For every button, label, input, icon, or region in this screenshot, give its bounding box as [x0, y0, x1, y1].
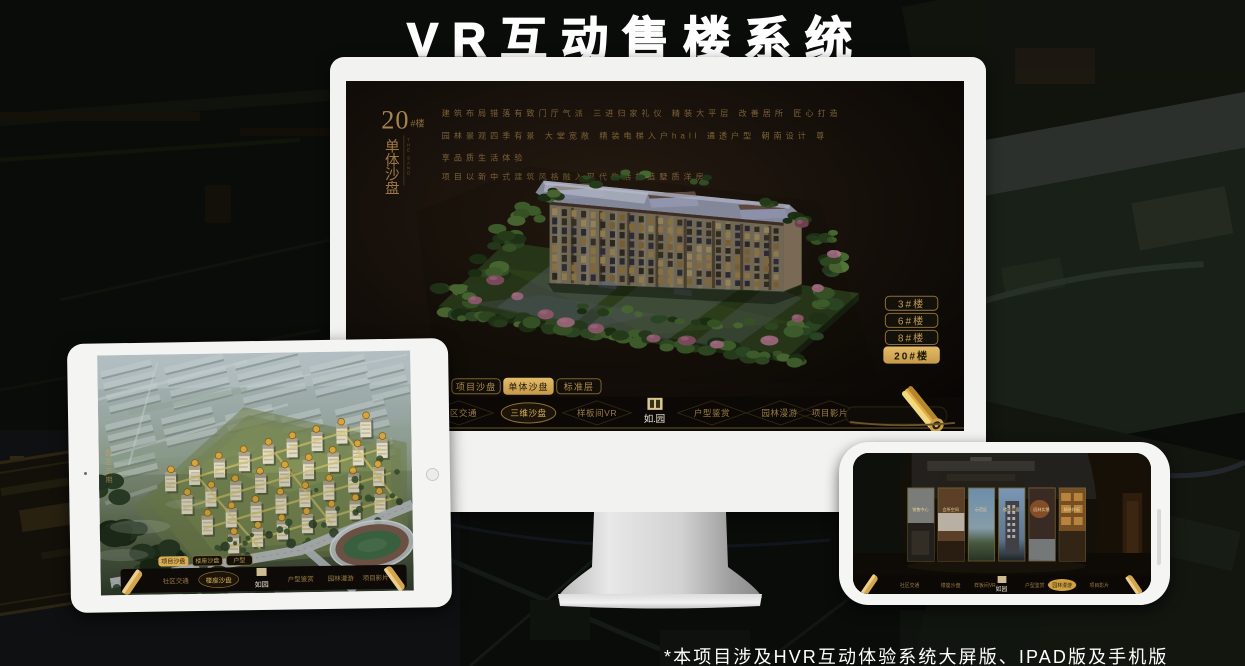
svg-text:样板间VR: 样板间VR: [974, 582, 996, 589]
svg-text:3#楼: 3#楼: [898, 297, 925, 310]
svg-text:精装样板: 精装样板: [1064, 506, 1080, 512]
svg-text:项目影片: 项目影片: [363, 573, 389, 582]
svg-text:园林漫游: 园林漫游: [328, 573, 355, 582]
svg-text:社区交通: 社区交通: [163, 576, 190, 585]
svg-text:示范区: 示范区: [975, 506, 987, 512]
svg-text:会所空间: 会所空间: [943, 506, 959, 512]
svg-text:户型鉴赏: 户型鉴赏: [288, 574, 315, 583]
svg-text:20#楼: 20#楼: [894, 350, 929, 363]
svg-text:户型鉴赏: 户型鉴赏: [1025, 582, 1045, 589]
svg-text:8#楼: 8#楼: [898, 332, 925, 345]
svg-text:#楼: #楼: [411, 117, 425, 128]
svg-text:楼栋立面: 楼栋立面: [1003, 506, 1019, 512]
svg-text:户型: 户型: [233, 556, 245, 564]
svg-text:项目影片: 项目影片: [1089, 582, 1109, 589]
svg-text:标准层: 标准层: [564, 381, 594, 392]
svg-text:建筑布局错落有致门厅气派 三进归家礼仪 精装大平层 改善居所: 建筑布局错落有致门厅气派 三进归家礼仪 精装大平层 改善居所 匠心打造: [442, 108, 842, 118]
svg-text:社区交通: 社区交通: [900, 582, 920, 589]
svg-text:销售中心: 销售中心: [912, 506, 928, 512]
svg-text:园: 园: [105, 449, 112, 457]
svg-text:D: D: [407, 171, 410, 176]
svg-text:园林漫游: 园林漫游: [761, 407, 797, 418]
svg-text:项目影片: 项目影片: [812, 407, 848, 418]
svg-text:项目沙盘: 项目沙盘: [456, 381, 496, 392]
svg-text:如.园: 如.园: [644, 413, 666, 425]
svg-text:园林实景: 园林实景: [1033, 506, 1049, 512]
svg-text:享品质生活体验: 享品质生活体验: [442, 152, 527, 162]
svg-text:6#楼: 6#楼: [898, 314, 925, 327]
svg-text:样板间VR: 样板间VR: [577, 407, 617, 418]
svg-text:户型鉴赏: 户型鉴赏: [694, 407, 730, 418]
svg-text:三: 三: [105, 467, 112, 475]
svg-text:楼座沙盘: 楼座沙盘: [206, 575, 233, 584]
svg-text:20: 20: [381, 105, 409, 134]
svg-text:如园: 如园: [996, 585, 1008, 593]
svg-text:园林景观四季有景 大堂宽敞 精装电梯入户hall 通透户型: 园林景观四季有景 大堂宽敞 精装电梯入户hall 通透户型 朝南设计 尊: [442, 130, 828, 140]
svg-text:盘: 盘: [385, 180, 400, 198]
svg-text:如园: 如园: [255, 580, 269, 589]
svg-text:三维沙盘: 三维沙盘: [510, 407, 546, 418]
svg-text:楼座沙盘: 楼座沙盘: [941, 582, 961, 589]
svg-text:E: E: [407, 147, 410, 152]
svg-text:期: 期: [106, 476, 113, 484]
svg-text:园林漫游: 园林漫游: [1052, 582, 1072, 589]
svg-text:区: 区: [105, 458, 112, 466]
svg-text:单体沙盘: 单体沙盘: [508, 381, 548, 392]
